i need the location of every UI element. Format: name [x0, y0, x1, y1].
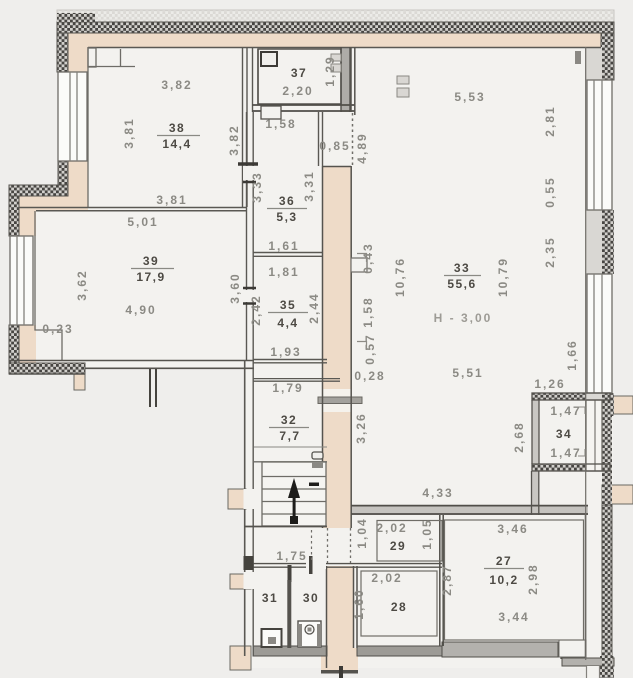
- svg-text:3,81: 3,81: [156, 193, 187, 207]
- svg-text:5,53: 5,53: [454, 90, 485, 104]
- svg-text:1,04: 1,04: [355, 517, 369, 548]
- svg-text:1,93: 1,93: [270, 345, 301, 359]
- svg-text:0,85: 0,85: [319, 139, 350, 153]
- svg-text:10,79: 10,79: [496, 257, 510, 297]
- svg-text:27: 27: [496, 554, 512, 568]
- svg-text:3,26: 3,26: [354, 412, 368, 443]
- svg-text:3,44: 3,44: [498, 610, 529, 624]
- svg-text:3,81: 3,81: [122, 117, 136, 148]
- svg-text:1,29: 1,29: [323, 55, 337, 86]
- svg-text:33: 33: [454, 261, 470, 275]
- svg-text:36: 36: [279, 194, 295, 208]
- svg-text:0,23: 0,23: [42, 322, 73, 336]
- svg-text:17,9: 17,9: [136, 270, 165, 284]
- svg-text:3,60: 3,60: [228, 272, 242, 303]
- svg-text:2,42: 2,42: [249, 294, 263, 325]
- svg-text:0,55: 0,55: [543, 176, 557, 207]
- svg-text:38: 38: [169, 121, 185, 135]
- svg-text:30: 30: [303, 591, 319, 605]
- svg-text:3,31: 3,31: [302, 170, 316, 201]
- svg-text:35: 35: [280, 298, 296, 312]
- svg-text:39: 39: [143, 254, 159, 268]
- svg-text:3,62: 3,62: [75, 269, 89, 300]
- svg-text:55,6: 55,6: [447, 277, 476, 291]
- svg-text:3,33: 3,33: [250, 171, 264, 202]
- svg-text:5,01: 5,01: [127, 215, 158, 229]
- svg-text:29: 29: [390, 539, 406, 553]
- svg-text:2,44: 2,44: [307, 292, 321, 323]
- svg-text:0,28: 0,28: [354, 369, 385, 383]
- svg-text:2,20: 2,20: [282, 84, 313, 98]
- svg-text:37: 37: [291, 66, 307, 80]
- svg-text:0,57: 0,57: [363, 333, 377, 364]
- svg-text:28: 28: [391, 600, 407, 614]
- svg-text:32: 32: [281, 413, 297, 427]
- svg-text:3,82: 3,82: [227, 124, 241, 155]
- svg-text:3,82: 3,82: [161, 78, 192, 92]
- svg-text:14,4: 14,4: [162, 137, 191, 151]
- svg-text:2,02: 2,02: [376, 521, 407, 535]
- svg-text:2,81: 2,81: [543, 105, 557, 136]
- svg-text:2,35: 2,35: [543, 236, 557, 267]
- svg-text:5,51: 5,51: [452, 366, 483, 380]
- svg-text:2,87: 2,87: [440, 564, 454, 595]
- svg-text:7,7: 7,7: [279, 429, 300, 443]
- svg-text:5,3: 5,3: [276, 210, 297, 224]
- svg-text:0,43: 0,43: [361, 242, 375, 273]
- svg-text:1,75: 1,75: [276, 549, 307, 563]
- svg-text:1,66: 1,66: [565, 339, 579, 370]
- svg-text:1,79: 1,79: [272, 381, 303, 395]
- svg-text:4,4: 4,4: [277, 316, 298, 330]
- svg-text:4,33: 4,33: [422, 486, 453, 500]
- svg-text:10,76: 10,76: [393, 257, 407, 297]
- svg-text:1,58: 1,58: [265, 117, 296, 131]
- svg-text:10,2: 10,2: [489, 573, 518, 587]
- svg-text:1,47: 1,47: [550, 404, 581, 418]
- svg-text:2,98: 2,98: [526, 563, 540, 594]
- svg-text:4,90: 4,90: [125, 303, 156, 317]
- svg-text:1,81: 1,81: [268, 265, 299, 279]
- svg-text:3,46: 3,46: [497, 522, 528, 536]
- svg-text:1,26: 1,26: [534, 377, 565, 391]
- svg-text:1,61: 1,61: [268, 239, 299, 253]
- svg-text:1,05: 1,05: [420, 518, 434, 549]
- svg-text:Н - 3,00: Н - 3,00: [434, 311, 493, 325]
- svg-text:1,60: 1,60: [352, 588, 366, 619]
- svg-text:1,58: 1,58: [361, 296, 375, 327]
- svg-text:4,89: 4,89: [355, 132, 369, 163]
- svg-text:2,02: 2,02: [371, 571, 402, 585]
- svg-text:1,47: 1,47: [550, 446, 581, 460]
- svg-text:2,68: 2,68: [512, 421, 526, 452]
- svg-text:34: 34: [556, 427, 572, 441]
- svg-text:31: 31: [262, 591, 278, 605]
